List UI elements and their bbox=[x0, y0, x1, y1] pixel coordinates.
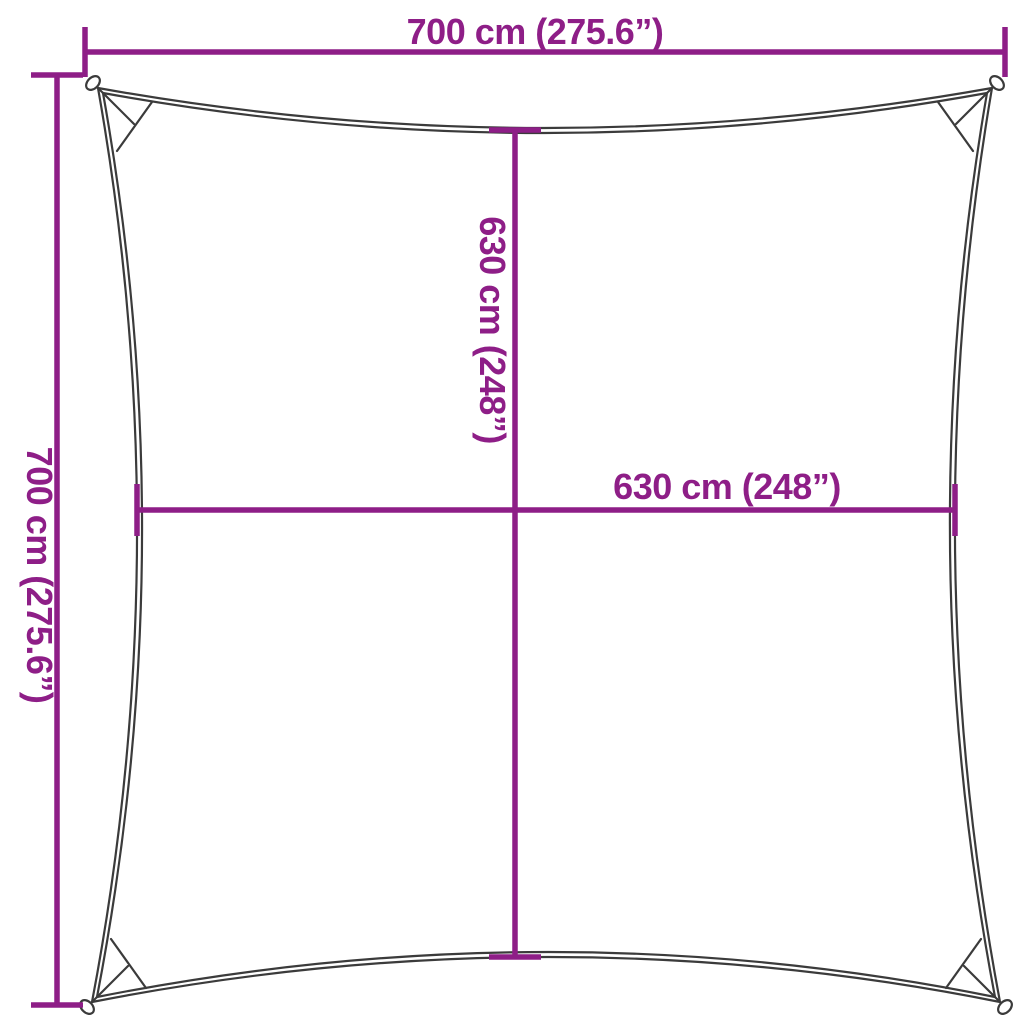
shade-sail-outline bbox=[77, 73, 1014, 1016]
sail-edge-left bbox=[92, 88, 137, 1002]
corner-patch bbox=[938, 102, 973, 151]
sail-corner-top-right bbox=[938, 73, 1007, 151]
dimension-label-inner-horizontal: 630 cm (248”) bbox=[613, 466, 841, 507]
sail-corner-bottom-right bbox=[946, 939, 1015, 1017]
sail-corner-bottom-left bbox=[77, 939, 146, 1017]
sail-edge-bottom-inner bbox=[97, 952, 995, 997]
sail-edge-bottom bbox=[92, 957, 1000, 1002]
dimension-label-left: 700 cm (275.6”) bbox=[19, 447, 60, 704]
corner-patch bbox=[111, 939, 146, 988]
dimension-label-top: 700 cm (275.6”) bbox=[407, 11, 664, 52]
corner-patch bbox=[946, 939, 981, 988]
dimension-lines bbox=[31, 27, 1005, 1005]
dimension-diagram: 700 cm (275.6”) 700 cm (275.6”) 630 cm (… bbox=[0, 0, 1024, 1024]
sail-corner-top-left bbox=[83, 73, 152, 151]
dimension-label-inner-vertical: 630 cm (248”) bbox=[472, 216, 513, 444]
corner-patch bbox=[117, 102, 152, 151]
sail-edge-right bbox=[955, 88, 1000, 1002]
sail-edge-top bbox=[98, 88, 992, 128]
diagram-canvas: 700 cm (275.6”) 700 cm (275.6”) 630 cm (… bbox=[0, 0, 1024, 1024]
